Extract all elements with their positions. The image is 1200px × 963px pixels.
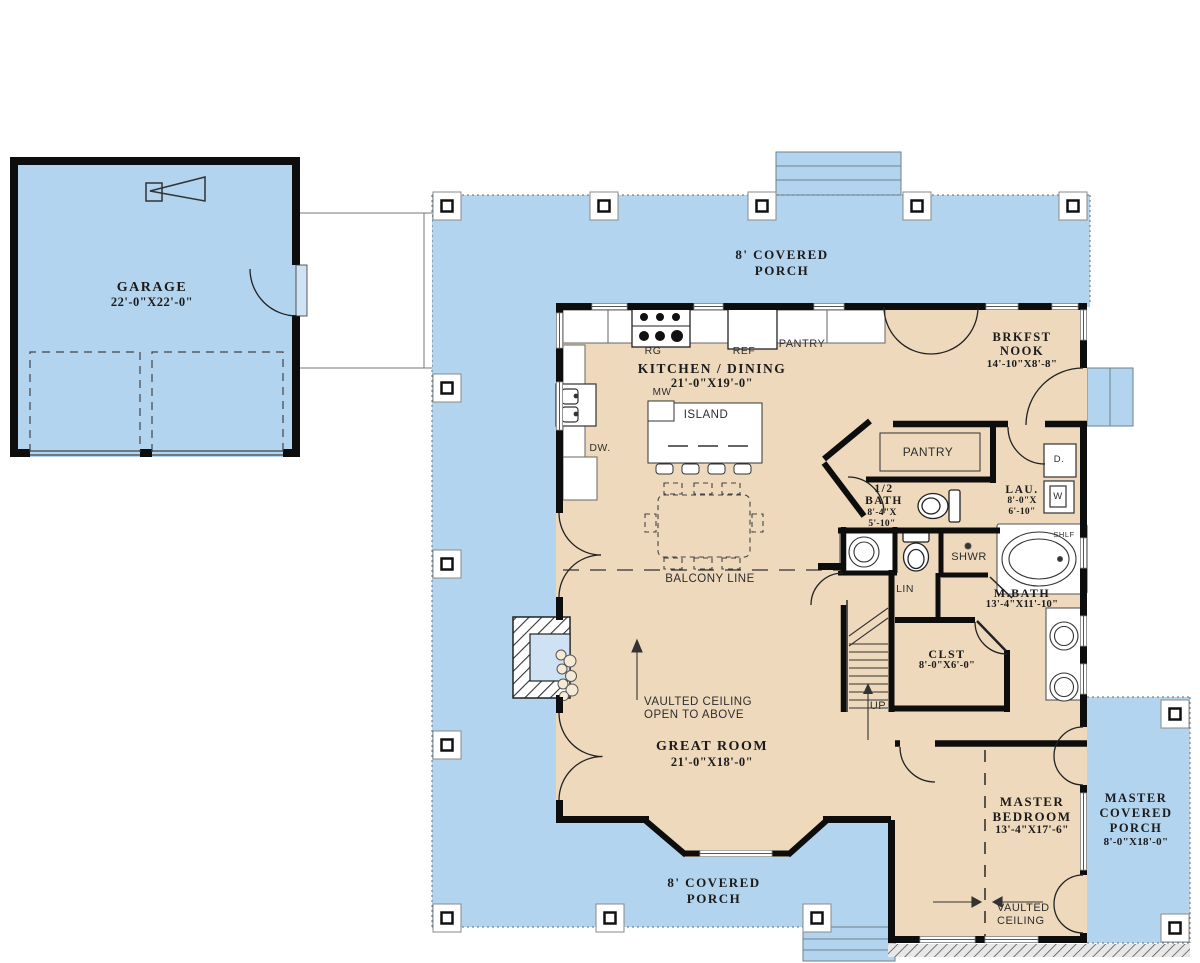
bedroom-vaulted-label-2: CEILING: [997, 916, 1045, 927]
garage-connector: [300, 213, 432, 368]
washer-label: W: [1053, 492, 1062, 502]
fridge-label: REF: [733, 346, 756, 357]
master-porch-label-3: PORCH: [1110, 822, 1163, 835]
range-label: RG: [645, 346, 662, 357]
great-room-label: GREAT ROOM: [656, 740, 768, 754]
master-porch-dims: 8'-0"X18'-0": [1104, 837, 1169, 848]
garage-dims: 22'-0"X22'-0": [111, 296, 193, 309]
brkfst-label-2: NOOK: [1000, 345, 1044, 358]
master-bedroom-label-1: MASTER: [1000, 795, 1065, 808]
master-porch-label-2: COVERED: [1099, 807, 1172, 820]
microwave-label: MW: [653, 388, 672, 398]
dishwasher-label: DW.: [589, 443, 610, 454]
bottom-porch-label-2: PORCH: [687, 892, 741, 905]
top-porch-label-2: PORCH: [755, 264, 809, 277]
fireplace: [513, 608, 578, 707]
half-bath-label-1: 1/2: [874, 484, 893, 496]
shelf-label: SHLF: [1053, 531, 1074, 539]
brkfst-label-1: BRKFST: [992, 331, 1051, 344]
vaulted-ceiling-label-1: VAULTED CEILING: [644, 697, 752, 709]
kitchen-dims: 21'-0"X19'-0": [671, 377, 753, 390]
shower-label: SHWR: [951, 552, 987, 563]
garage-label: GARAGE: [117, 281, 187, 295]
brkfst-dims: 14'-10"X8'-8": [987, 359, 1058, 370]
great-room-dims: 21'-0"X18'-0": [671, 756, 753, 769]
mbath-dims: 13'-4"X11'-10": [986, 600, 1058, 611]
balcony-line-label: BALCONY LINE: [665, 574, 755, 586]
laundry-label: LAU.: [1005, 485, 1038, 497]
linen-label: LIN: [896, 584, 914, 595]
laundry-dims-2: 6'-10": [1008, 508, 1035, 518]
bottom-porch-label-1: 8' COVERED: [667, 876, 760, 889]
master-bedroom-label-2: BEDROOM: [992, 810, 1071, 823]
foundation-hatch: [888, 944, 1190, 957]
floor-plan: GARAGE 22'-0"X22'-0" 8' COVERED PORCH 8'…: [0, 0, 1200, 963]
range: [632, 306, 690, 347]
kitchen-label: KITCHEN / DINING: [638, 362, 787, 376]
bedroom-vaulted-label-1: VAULTED: [997, 903, 1050, 914]
master-bedroom-dims: 13'-4"X17'-6": [995, 825, 1069, 837]
refrigerator: [728, 306, 777, 349]
pantry-room-label: PANTRY: [903, 446, 954, 458]
vaulted-ceiling-label-2: OPEN TO ABOVE: [644, 710, 744, 722]
half-bath-label-2: BATH: [865, 496, 903, 508]
closet-dims: 8'-0"X6'-0": [919, 661, 975, 672]
stairs-up-label: UP: [870, 701, 886, 712]
island-label: ISLAND: [684, 410, 729, 422]
pantry-cabinet-label: PANTRY: [779, 339, 826, 350]
closet-label: CLST: [928, 648, 965, 660]
top-porch-label-1: 8' COVERED: [735, 248, 828, 261]
mbath-label: M.BATH: [994, 587, 1050, 599]
master-porch-label-1: MASTER: [1105, 792, 1167, 805]
half-bath-dims-2: 5'-10": [868, 520, 895, 530]
dryer-label: D.: [1054, 455, 1065, 465]
half-bath-dims-1: 8'-4"X: [867, 509, 896, 519]
laundry-dims-1: 8'-0"X: [1007, 497, 1036, 507]
